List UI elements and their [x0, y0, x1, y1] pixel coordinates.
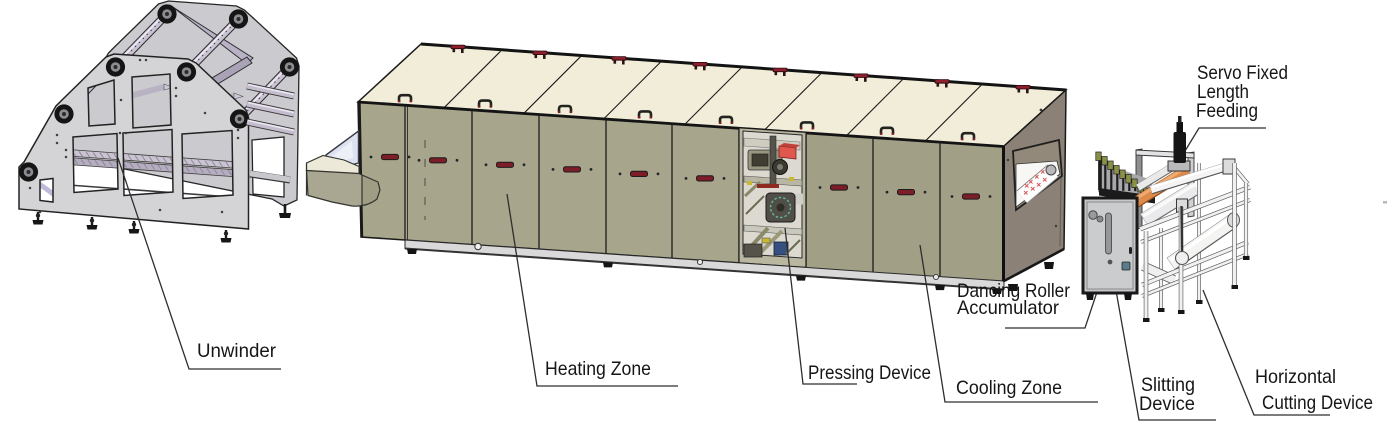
svg-text:Heating Zone: Heating Zone — [545, 358, 651, 380]
svg-text:Unwinder: Unwinder — [197, 340, 276, 362]
svg-text:Horizontal: Horizontal — [1255, 366, 1336, 388]
svg-text:Cutting Device: Cutting Device — [1262, 392, 1373, 414]
svg-text:Accumulator: Accumulator — [957, 297, 1059, 319]
svg-text:Pressing Device: Pressing Device — [808, 362, 931, 384]
svg-text:Feeding: Feeding — [1196, 100, 1258, 122]
svg-text:Cooling Zone: Cooling Zone — [956, 377, 1062, 399]
svg-text:Device: Device — [1139, 393, 1195, 415]
